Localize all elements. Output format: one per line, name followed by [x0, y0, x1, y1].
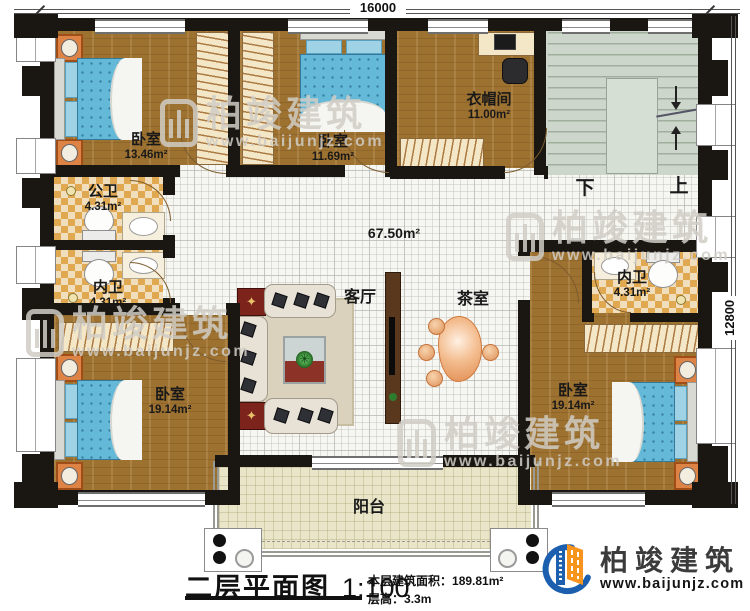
side-table: ✦ [237, 402, 266, 430]
watermark-text: 柏竣建筑 www.baijunjz.com [72, 306, 250, 360]
room-name: 衣帽间 [466, 92, 511, 109]
room-area: 4.31m² [85, 201, 121, 214]
tea-stool [426, 370, 443, 387]
room-label-cloakroom: 衣帽间 11.00m² [449, 92, 529, 122]
dimension-right-value: 12800 [722, 296, 737, 340]
room-area: 11.69m² [312, 151, 354, 164]
sofa-pillow [240, 377, 256, 393]
room-area: 11.00m² [468, 109, 510, 122]
bed-pillow [674, 424, 687, 459]
floor-drain [676, 295, 686, 305]
wall-pier [22, 66, 40, 96]
watermark: 柏竣建筑 www.baijunjz.com [398, 416, 622, 470]
wall-interior [518, 300, 530, 503]
wall-pier [712, 150, 728, 180]
stair-treads-left [548, 32, 606, 172]
window [552, 492, 645, 507]
window [562, 19, 610, 34]
room-label-bedroom-bottom-left: 卧室 19.14m² [130, 387, 210, 417]
bed-pillow [674, 386, 687, 421]
wall-interior [54, 165, 180, 177]
sofa-pillow [273, 407, 289, 423]
room-name: 内卫 [617, 270, 647, 287]
wall-pier [22, 454, 40, 484]
stair-arrow-up [675, 134, 677, 150]
room-name: 卧室 [155, 387, 185, 404]
wall-interior [163, 177, 175, 195]
floor-area-line: 本层建筑面积：189.81m² [368, 572, 503, 590]
watermark: 柏竣建筑 www.baijunjz.com [160, 96, 384, 150]
room-name: 卧室 [558, 383, 588, 400]
hall-area-label: 67.50m² [354, 226, 434, 242]
room-name: 阳台 [353, 499, 385, 517]
bed [612, 382, 698, 462]
sofa [264, 398, 338, 434]
wall-pier [712, 446, 728, 482]
window-bay [696, 348, 736, 444]
watermark-logo-icon [506, 213, 544, 261]
room-area: 4.31m² [614, 287, 650, 300]
window [288, 19, 368, 34]
floor-area-label: 本层建筑面积： [368, 574, 452, 588]
wall-pier [22, 178, 40, 208]
bed-pillow [346, 40, 382, 54]
room-name: 客厅 [344, 289, 376, 307]
watermark: 柏竣建筑 www.baijunjz.com [26, 306, 250, 360]
watermark-logo-icon [398, 419, 436, 467]
sofa-pillow [297, 407, 313, 423]
stair-treads-top [606, 32, 656, 78]
coffee-table: ✳ [283, 336, 326, 384]
room-label-living-room: 客厅 [339, 289, 381, 307]
room-label-bedroom-bottom-right: 卧室 19.14m² [533, 383, 613, 413]
bed-blanket [110, 58, 142, 140]
stair-arrow-down-head [671, 102, 681, 110]
sofa-pillow [313, 292, 329, 308]
tv-console [385, 272, 401, 424]
stair-direction: 下 [575, 178, 594, 199]
room-label-inner-bathroom-right: 内卫 4.31m² [602, 270, 662, 300]
company-logo-text: 柏竣建筑 www.baijunjz.com [600, 546, 744, 591]
sofa-pillow [271, 292, 287, 308]
stair-void [606, 78, 658, 174]
plant [389, 393, 397, 401]
company-logo-brand: 柏竣建筑 [600, 546, 744, 575]
wall-pier [712, 60, 728, 96]
laptop [494, 34, 516, 50]
room-area: 19.14m² [149, 404, 192, 417]
watermark-logo-icon [26, 309, 64, 357]
window-bay [16, 246, 56, 284]
nightstand [56, 139, 83, 167]
tea-stool [428, 318, 445, 335]
wardrobe [584, 324, 700, 353]
watermark-brand: 柏竣建筑 [72, 306, 250, 342]
watermark-text: 柏竣建筑 www.baijunjz.com [206, 96, 384, 150]
window [428, 19, 488, 34]
sofa-pillow [293, 292, 309, 308]
window [95, 19, 185, 34]
wall-interior [630, 313, 698, 322]
floor-height-line: 层高：3.3m [368, 590, 503, 608]
post-ring [498, 549, 517, 568]
watermark-brand: 柏竣建筑 [444, 416, 622, 452]
tea-stool [418, 344, 435, 361]
wall-corner [14, 482, 58, 508]
stair-arrow-down [675, 86, 677, 102]
sofa-pillow [317, 407, 333, 423]
watermark-logo-icon [160, 99, 198, 147]
floor-plan-canvas: ✦ ✦ ✳ [0, 0, 750, 611]
room-name: 内卫 [93, 280, 123, 297]
watermark: 柏竣建筑 www.baijunjz.com [506, 210, 730, 264]
wall-interior [390, 166, 505, 179]
bed-pillow [306, 40, 342, 54]
post-dot [213, 534, 226, 547]
nightstand [56, 462, 83, 490]
balcony-dashed-line [227, 541, 525, 542]
room-name: 公卫 [88, 184, 118, 201]
window [78, 492, 205, 507]
wall-interior [226, 165, 345, 177]
stair-label-up: 上 [666, 176, 692, 197]
window-bay [696, 104, 736, 146]
floor-drain [68, 293, 78, 303]
watermark-url: www.baijunjz.com [72, 344, 250, 360]
room-label-tea-room: 茶室 [452, 291, 494, 309]
room-area: 67.50m² [368, 226, 420, 242]
room-label-balcony: 阳台 [348, 499, 390, 517]
room-area: 19.14m² [552, 400, 595, 413]
watermark-brand: 柏竣建筑 [206, 96, 384, 132]
wall-interior [582, 313, 594, 322]
plant: ✳ [296, 351, 313, 368]
title-underline [185, 596, 362, 600]
bed [54, 380, 142, 460]
post-dot [213, 551, 226, 564]
watermark-brand: 柏竣建筑 [552, 210, 730, 246]
wall-interior [544, 166, 548, 179]
room-name: 茶室 [457, 291, 489, 309]
room-name: 卧室 [131, 132, 161, 149]
floor-area-value: 189.81m² [452, 574, 503, 588]
stair-direction: 上 [669, 176, 688, 197]
room-label-public-bathroom: 公卫 4.31m² [73, 184, 133, 214]
company-logo: 柏竣建筑 www.baijunjz.com [536, 538, 744, 600]
wall-corner [14, 14, 58, 38]
window-bay [16, 138, 56, 174]
company-logo-icon [536, 538, 592, 600]
tv-screen [389, 317, 395, 375]
bed [54, 58, 142, 140]
company-logo-url: www.baijunjz.com [600, 576, 744, 592]
floor-height-value: 3.3m [404, 592, 431, 606]
room-area: 13.46m² [125, 149, 168, 162]
window [648, 19, 694, 34]
stair-label-down: 下 [572, 178, 598, 199]
wardrobe [400, 138, 484, 168]
bed-headboard [54, 58, 65, 140]
wall-pier [712, 262, 728, 292]
dimension-top-value: 16000 [350, 0, 406, 16]
window-bay [16, 358, 56, 452]
watermark-text: 柏竣建筑 www.baijunjz.com [444, 416, 622, 470]
watermark-text: 柏竣建筑 www.baijunjz.com [552, 210, 730, 264]
watermark-url: www.baijunjz.com [552, 248, 730, 264]
dimension-line-right-2 [735, 16, 736, 504]
tea-stool [482, 344, 499, 361]
desk-chair [502, 58, 528, 84]
watermark-url: www.baijunjz.com [206, 134, 384, 150]
dimension-line-right [731, 16, 732, 504]
stair-arrow-up-head [671, 126, 681, 134]
wall-interior [54, 240, 175, 250]
plan-info: 本层建筑面积：189.81m² 层高：3.3m [368, 572, 503, 608]
floor-height-label: 层高： [368, 592, 404, 606]
watermark-url: www.baijunjz.com [444, 454, 622, 470]
sofa [264, 284, 336, 318]
